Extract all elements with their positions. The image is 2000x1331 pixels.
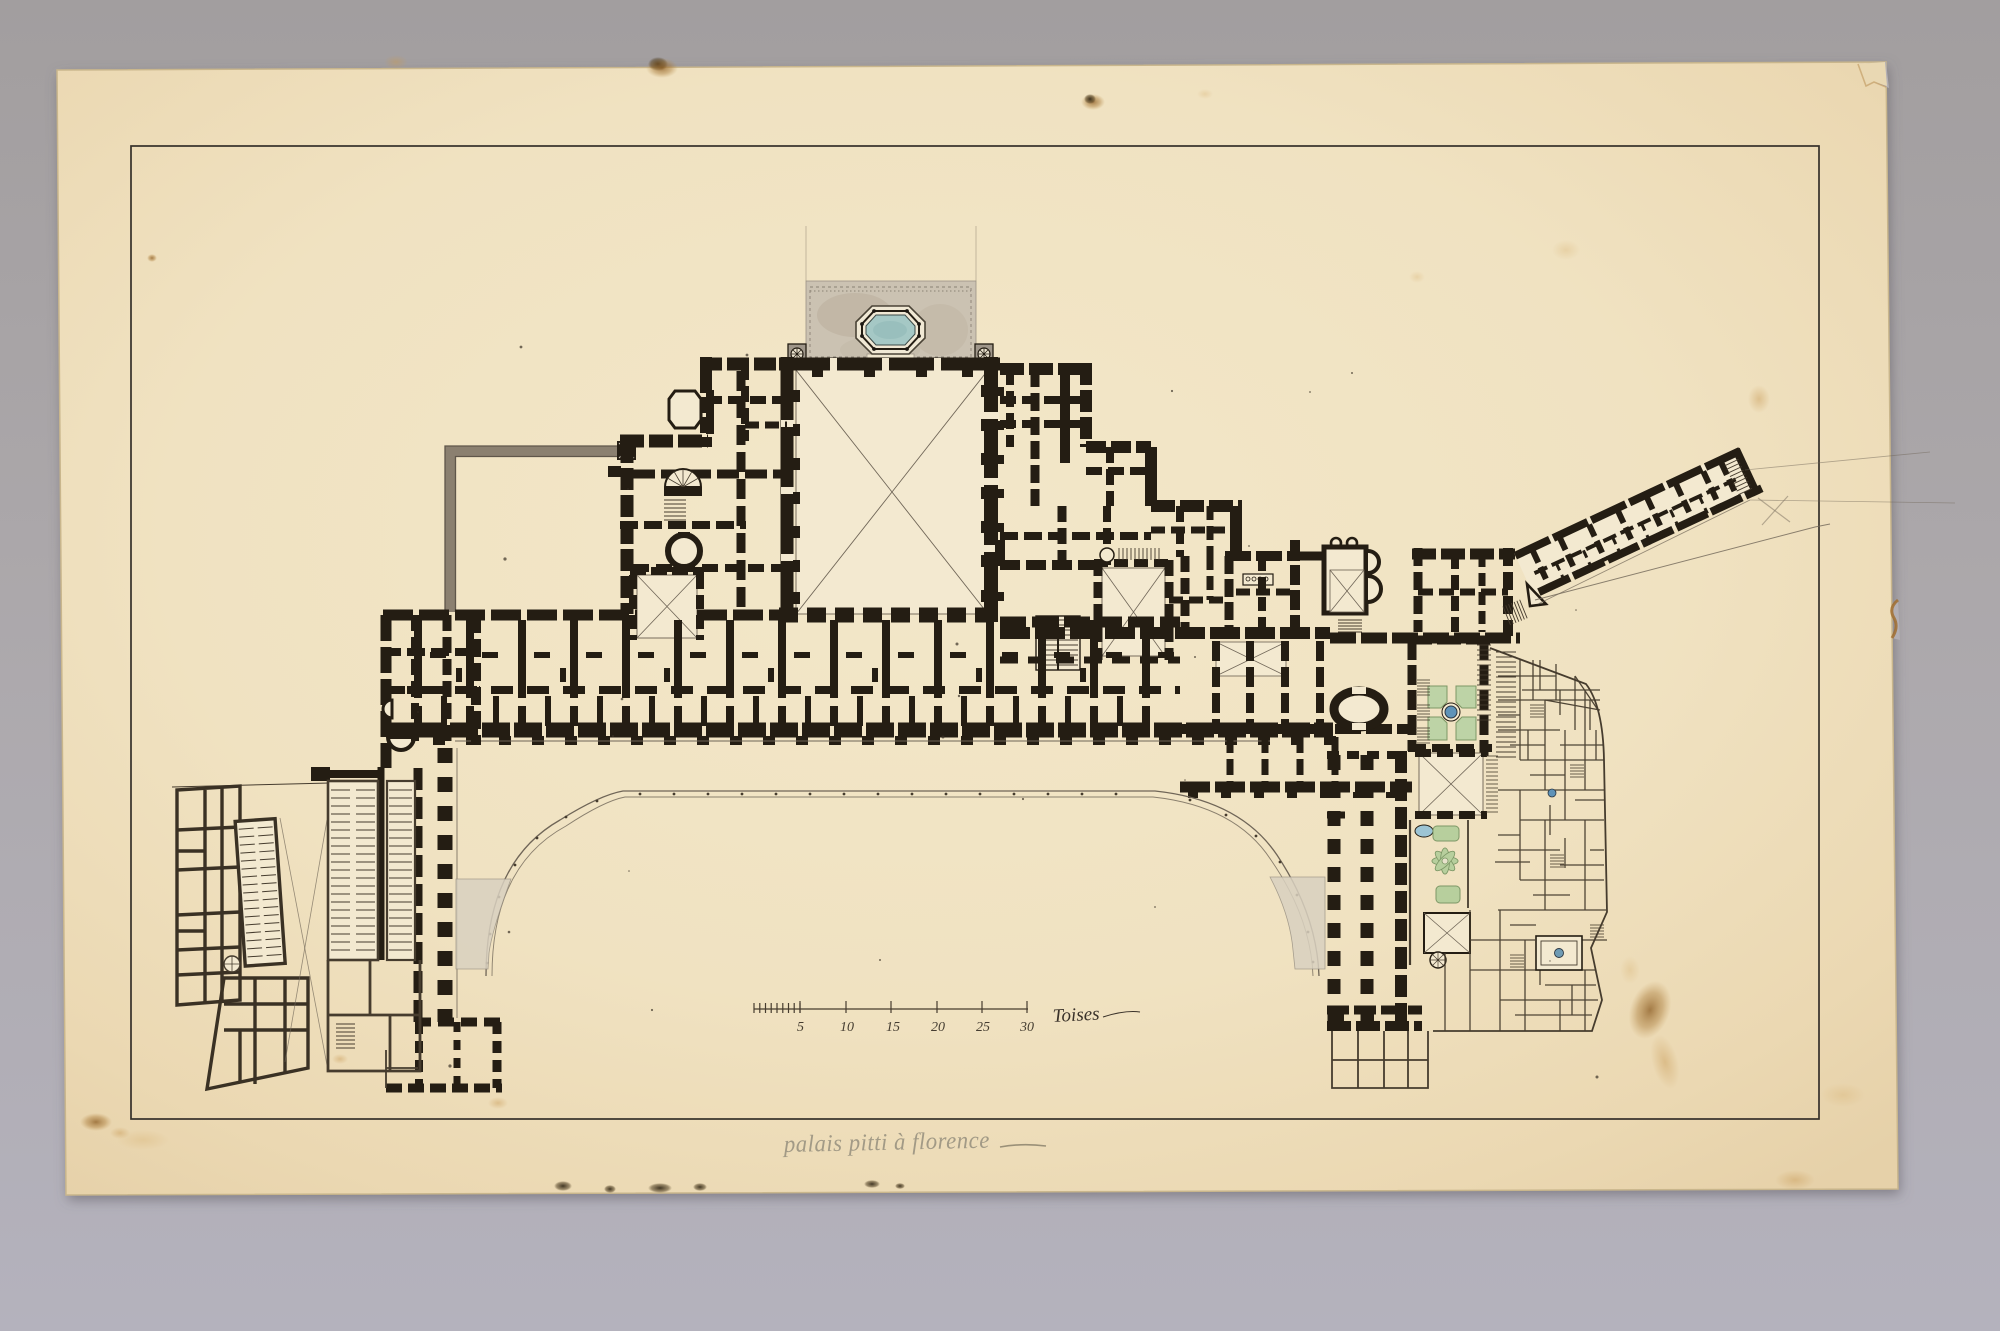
- svg-text:10: 10: [840, 1020, 854, 1035]
- svg-text:15: 15: [886, 1020, 900, 1035]
- svg-text:Toises: Toises: [1052, 1004, 1100, 1027]
- svg-text:25: 25: [976, 1020, 990, 1035]
- svg-text:30: 30: [1019, 1020, 1034, 1035]
- svg-text:20: 20: [931, 1020, 945, 1035]
- svg-text:palais pitti à florence: palais pitti à florence: [782, 1128, 990, 1158]
- svg-text:5: 5: [797, 1020, 804, 1035]
